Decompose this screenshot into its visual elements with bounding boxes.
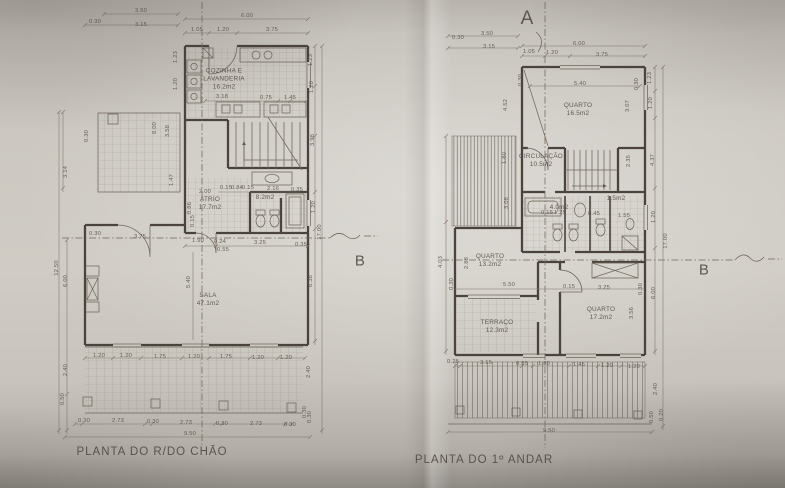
ground-floor-title: PLANTA DO R/DO CHÃO <box>76 446 227 458</box>
dimension-label: 0.45 <box>588 211 600 217</box>
dimension-label: 3.18 <box>216 94 228 100</box>
dimension-label: 0.15 <box>242 185 254 191</box>
dimension-label: 1.20 <box>309 81 315 93</box>
dimension-label: 1.20 <box>651 211 657 223</box>
dimension-label: 2.73 <box>112 418 124 424</box>
dimension-label: 3.75 <box>596 52 608 58</box>
dimension-label: 1.20 <box>546 50 558 56</box>
dimension-label: 1.20 <box>628 364 640 370</box>
dimension-label: 0.30 <box>78 418 90 424</box>
dimension-label: 9.50 <box>184 431 196 437</box>
dimension-label: 3.50 <box>481 31 493 37</box>
dimension-label: 2.40 <box>306 366 312 378</box>
dimension-label: 0.30 <box>284 422 296 428</box>
dimension-label: 3.15 <box>135 22 147 28</box>
first-floor-title: PLANTA DO 1º ANDAR <box>415 454 553 466</box>
dimension-label: 0.55 <box>516 361 528 367</box>
dimension-label: 0.75 <box>260 95 272 101</box>
dimension-label: 6.00 <box>241 13 253 19</box>
photo-of-architectural-sheet: PLANTA DO R/DO CHÃO PLANTA DO 1º ANDAR A… <box>0 0 785 488</box>
dimension-label: 5.40 <box>186 276 192 288</box>
dimension-label: 3.15 <box>480 360 492 366</box>
dimension-label: 0.50 <box>60 393 66 405</box>
dimension-label: 0.30 <box>452 35 464 41</box>
dimension-label: 17.00 <box>663 233 669 249</box>
dimension-label: 3.98 <box>310 134 316 146</box>
dimension-label: 1.47 <box>169 174 175 186</box>
dimension-label: 1.80 <box>502 152 508 164</box>
section-letter-b-first: B <box>699 262 709 279</box>
dimension-label: 2.73 <box>180 420 192 426</box>
room-label: QUARTO17.2m2 <box>587 306 615 322</box>
dimension-label: 1.20 <box>280 355 292 361</box>
dimension-label: 0.30 <box>449 278 455 290</box>
room-label: 4.0m2 <box>550 204 569 212</box>
dimension-label: 1.75 <box>220 354 232 360</box>
dimension-label: 0.30 <box>216 421 228 427</box>
dimension-label: 17.00 <box>317 224 323 240</box>
dimension-label: 1.20 <box>311 201 317 213</box>
label-layer: PLANTA DO R/DO CHÃO PLANTA DO 1º ANDAR A… <box>0 0 785 488</box>
dimension-label: 0.30 <box>84 130 90 142</box>
room-label: 1.5m2 <box>607 195 626 203</box>
dimension-label: 6.00 <box>63 275 69 287</box>
dimension-label: 0.35 <box>291 187 303 193</box>
dimension-label: 0.55 <box>217 247 229 253</box>
dimension-label: 9.50 <box>543 428 555 434</box>
dimension-label: 1.75 <box>154 354 166 360</box>
room-label: QUARTO13.2m2 <box>476 253 504 269</box>
dimension-label: 3.75 <box>266 27 278 33</box>
dimension-label: 3.50 <box>135 8 147 14</box>
dimension-label: 4.03 <box>438 256 444 268</box>
section-letter-b-ground: B <box>355 253 365 270</box>
room-label: ATRIO17.7m2 <box>199 196 222 212</box>
dimension-label: 1.20 <box>601 363 613 369</box>
dimension-label: 2.35 <box>626 155 632 167</box>
dimension-label: 5.50 <box>503 282 515 288</box>
room-label: CIRCULAÇÃO10.5m2 <box>519 153 563 169</box>
room-label: COZINHA ELAVANDERIA16.2m2 <box>203 68 245 93</box>
dimension-label: 0.30 <box>638 283 644 295</box>
dimension-label: 1.80 <box>538 361 550 367</box>
dimension-label: 12.50 <box>54 260 60 276</box>
dimension-label: 0.15 <box>190 215 196 227</box>
dimension-label: 2.40 <box>653 383 659 395</box>
dimension-label: 5.40 <box>574 81 586 87</box>
dimension-label: 1.20 <box>120 353 132 359</box>
dimension-label: 3.56 <box>629 307 635 319</box>
dimension-label: 0.30 <box>89 19 101 25</box>
dimension-label: 0.30 <box>307 411 313 423</box>
dimension-label: 2.00 <box>199 189 211 195</box>
dimension-label: 0.24 <box>214 239 226 245</box>
section-letter-a: A <box>521 8 534 30</box>
dimension-label: 3.25 <box>598 285 610 291</box>
dimension-label: 0.50 <box>649 411 655 423</box>
dimension-label: 6.00 <box>651 287 657 299</box>
dimension-label: 1.45 <box>284 95 296 101</box>
dimension-label: 3.75 <box>134 234 146 240</box>
dimension-label: 0.35 <box>295 242 307 248</box>
dimension-label: 1.20 <box>93 353 105 359</box>
dimension-label: 6.00 <box>573 41 585 47</box>
dimension-label: 3.07 <box>625 100 631 112</box>
dimension-label: 1.23 <box>308 54 314 66</box>
room-label: TERRAÇO12.3m2 <box>481 319 514 335</box>
dimension-label: 1.20 <box>648 97 654 109</box>
dimension-label: 0.30 <box>634 78 640 90</box>
dimension-label: 1.05 <box>523 49 535 55</box>
room-label: 8.2m2 <box>256 194 275 202</box>
room-label: SALA47.1m2 <box>197 292 220 308</box>
dimension-label: 3.08 <box>504 197 510 209</box>
dimension-label: 2.73 <box>250 421 262 427</box>
dimension-label: 0.30 <box>518 74 524 86</box>
dimension-label: 1.20 <box>252 355 264 361</box>
dimension-label: 1.20 <box>188 354 200 360</box>
dimension-label: 4.37 <box>650 154 656 166</box>
dimension-label: 1.20 <box>217 27 229 33</box>
dimension-label: 0.86 <box>187 202 193 214</box>
room-label: QUARTO16.5m2 <box>564 102 592 118</box>
dimension-label: 1.23 <box>173 51 179 63</box>
dimension-label: 0.25 <box>447 359 459 365</box>
dimension-label: 1.05 <box>191 27 203 33</box>
dimension-label: 2.88 <box>464 257 470 269</box>
dimension-label: 4.52 <box>503 99 509 111</box>
dimension-label: 3.25 <box>254 240 266 246</box>
dimension-label: 2.16 <box>267 186 279 192</box>
dimension-label: 3.15 <box>483 44 495 50</box>
dimension-label: 8.00 <box>152 122 158 134</box>
dimension-label: 3.14 <box>63 166 69 178</box>
dimension-label: 1.23 <box>647 72 653 84</box>
dimension-label: 0.15 <box>563 284 575 290</box>
dimension-label: 0.20 <box>659 409 665 421</box>
dimension-label: 1.90 <box>192 238 204 244</box>
dimension-label: 0.30 <box>89 231 101 237</box>
dimension-label: 3.58 <box>165 125 171 137</box>
dimension-label: 1.20 <box>173 78 179 90</box>
dimension-label: 6.38 <box>308 275 314 287</box>
dimension-label: 0.30 <box>147 419 159 425</box>
dimension-label: 1.45 <box>573 362 585 368</box>
dimension-label: 2.40 <box>63 364 69 376</box>
dimension-label: 1.55 <box>618 213 630 219</box>
